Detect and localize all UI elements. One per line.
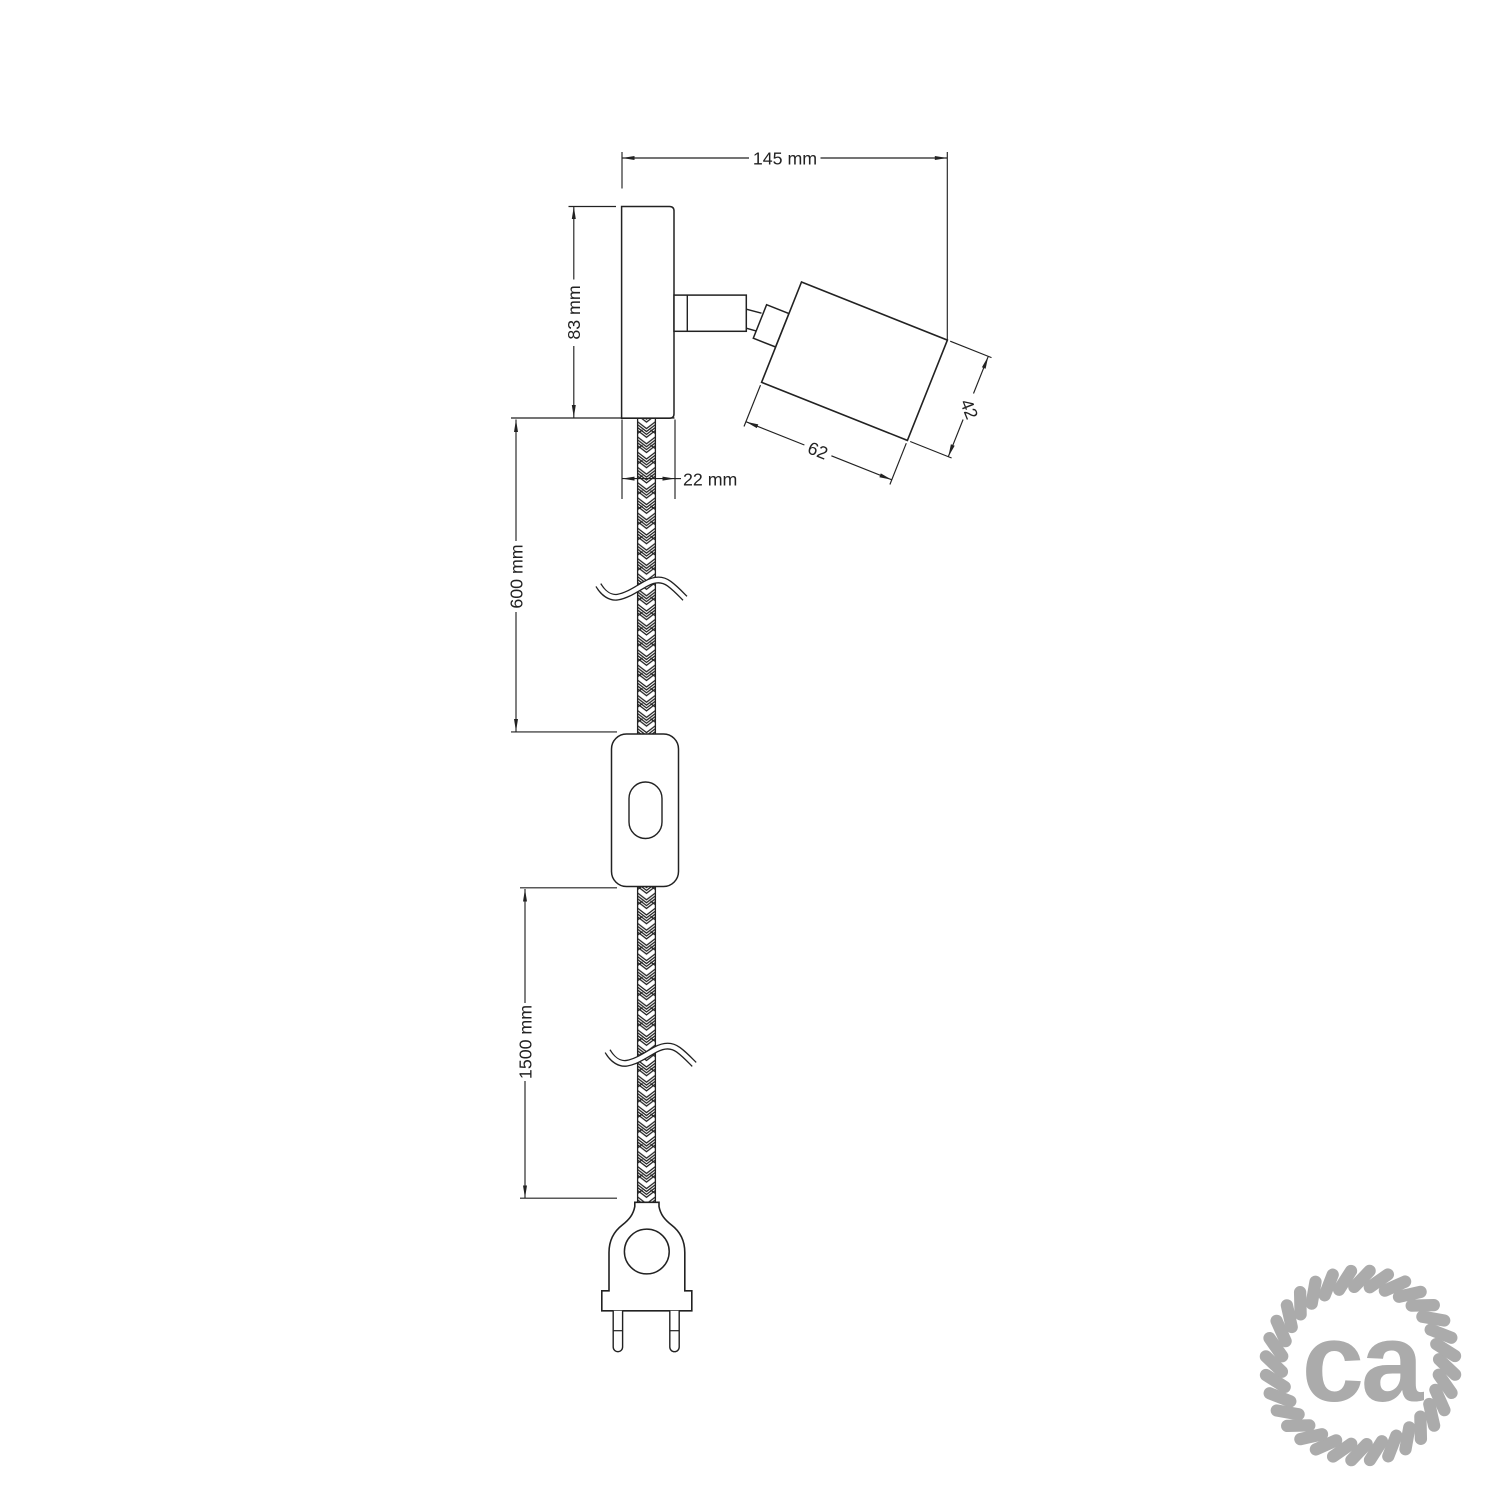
svg-text:145 mm: 145 mm [753, 148, 817, 168]
svg-text:600 mm: 600 mm [506, 544, 526, 608]
svg-text:1500 mm: 1500 mm [515, 1005, 535, 1079]
svg-text:ca: ca [1302, 1300, 1424, 1425]
svg-text:83 mm: 83 mm [564, 285, 584, 339]
svg-text:22 mm: 22 mm [683, 469, 737, 489]
